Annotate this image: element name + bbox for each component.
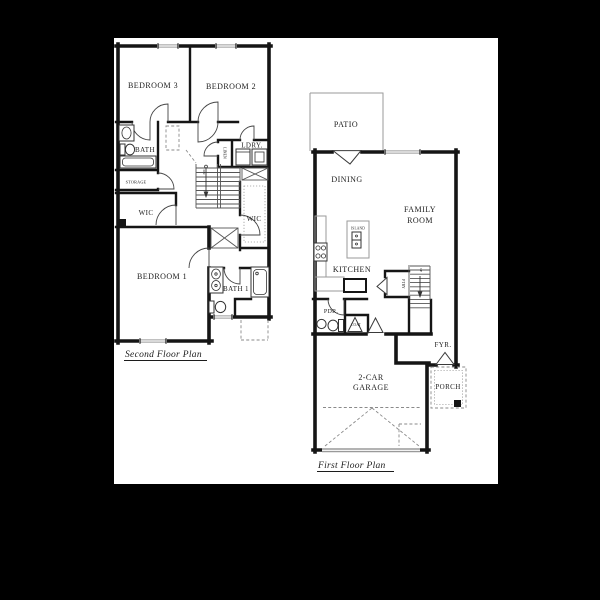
family-room-label-2: ROOM bbox=[407, 216, 433, 225]
range-icon bbox=[314, 243, 327, 261]
ff-window-family bbox=[384, 149, 421, 155]
garage-label-2: GARAGE bbox=[353, 383, 389, 392]
ptry-label: PTRY bbox=[401, 279, 405, 289]
island-label: ISLAND bbox=[351, 227, 365, 231]
garage-door-opening bbox=[322, 447, 420, 453]
linen-label: LINEN bbox=[223, 147, 227, 159]
sf-window-bedroom2 bbox=[215, 43, 237, 49]
pdr-label: PDR. bbox=[324, 309, 339, 315]
dn-label: DN bbox=[202, 170, 206, 175]
bedroom2-label: BEDROOM 2 bbox=[206, 82, 256, 91]
kitchen-cabinet-block bbox=[344, 279, 366, 292]
pdr-toilet-icon bbox=[328, 320, 344, 332]
wall-pier bbox=[119, 219, 126, 226]
bath1-double-sink-icon bbox=[209, 267, 223, 293]
dryer-icon bbox=[252, 149, 267, 165]
coat-label: COAT bbox=[351, 323, 362, 327]
sf-window-bedroom3 bbox=[157, 43, 179, 49]
pdr-sink-icon bbox=[317, 319, 326, 328]
floor-plan-sheet: BEDROOM 3 BEDROOM 2 BATH LDRY. LINEN STO… bbox=[0, 0, 600, 600]
bath-label: BATH bbox=[135, 146, 155, 154]
bath1-tub-icon bbox=[251, 267, 269, 297]
bath-sink-icon bbox=[119, 125, 134, 141]
wic-right-label: WIC bbox=[247, 215, 262, 223]
first-floor-caption: First Floor Plan bbox=[317, 461, 386, 471]
washer-icon bbox=[236, 149, 250, 165]
sf-window-bath1 bbox=[213, 314, 233, 320]
dining-label: DINING bbox=[331, 175, 362, 184]
ldry-label: LDRY. bbox=[241, 142, 263, 150]
bedroom3-label: BEDROOM 3 bbox=[128, 81, 178, 90]
fyr-label: FYR. bbox=[435, 341, 452, 349]
wic-left-label: WIC bbox=[139, 209, 154, 217]
bath-toilet-icon bbox=[120, 144, 135, 155]
storage-label: STORAGE bbox=[126, 180, 147, 185]
bath-tub-icon bbox=[120, 156, 156, 168]
second-floor-caption: Second Floor Plan bbox=[125, 350, 202, 360]
patio-label: PATIO bbox=[334, 120, 358, 129]
porch-post bbox=[454, 400, 461, 407]
sf-window-bedroom1 bbox=[139, 338, 167, 344]
bedroom1-label: BEDROOM 1 bbox=[137, 272, 187, 281]
garage-label-1: 2-CAR bbox=[358, 373, 384, 382]
family-room-label-1: FAMILY bbox=[404, 205, 436, 214]
porch-label: PORCH bbox=[435, 383, 460, 391]
bath1-toilet-icon bbox=[209, 301, 226, 313]
bath1-label: BATH 1 bbox=[223, 285, 249, 293]
paper bbox=[114, 38, 498, 484]
kitchen-label: KITCHEN bbox=[333, 265, 371, 274]
up-label: UP bbox=[419, 268, 423, 272]
